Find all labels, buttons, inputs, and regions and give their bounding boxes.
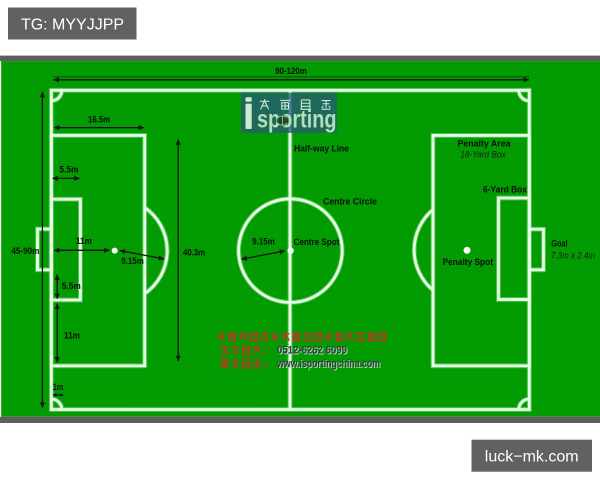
svg-text:www.isportingchina.com: www.isportingchina.com — [276, 358, 380, 370]
svg-text:90-120m: 90-120m — [275, 66, 307, 77]
svg-text:5.5m: 5.5m — [62, 281, 81, 292]
svg-text:0512-6262 6099: 0512-6262 6099 — [277, 345, 347, 357]
svg-text:Half-way Line: Half-way Line — [294, 144, 349, 155]
svg-text:sporting: sporting — [257, 105, 337, 133]
svg-text:Penalty Spot: Penalty Spot — [443, 257, 494, 268]
svg-text:9.15m: 9.15m — [121, 256, 144, 267]
svg-text:40.3m: 40.3m — [183, 248, 205, 259]
svg-text:5.5m: 5.5m — [60, 164, 79, 175]
svg-text:6-Yard Box: 6-Yard Box — [483, 184, 528, 195]
svg-text:9.15m: 9.15m — [252, 237, 275, 248]
svg-text:Penalty Area: Penalty Area — [458, 139, 512, 150]
svg-text:1m: 1m — [53, 382, 64, 393]
svg-text:45-90m: 45-90m — [11, 246, 39, 257]
svg-text:Centre Circle: Centre Circle — [323, 197, 377, 208]
svg-text:11m: 11m — [76, 236, 92, 247]
svg-text:7.3m x 2.4m: 7.3m x 2.4m — [551, 250, 595, 261]
svg-text:Centre Spot: Centre Spot — [294, 237, 340, 248]
svg-text:18-Yard Box: 18-Yard Box — [460, 149, 506, 160]
svg-text:16.5m: 16.5m — [88, 115, 110, 126]
svg-text:TG: MYYJJPP: TG: MYYJJPP — [21, 16, 124, 33]
svg-text:Goal: Goal — [551, 238, 567, 249]
svg-text:11m: 11m — [64, 331, 80, 342]
svg-text:luck−mk.com: luck−mk.com — [485, 448, 579, 465]
